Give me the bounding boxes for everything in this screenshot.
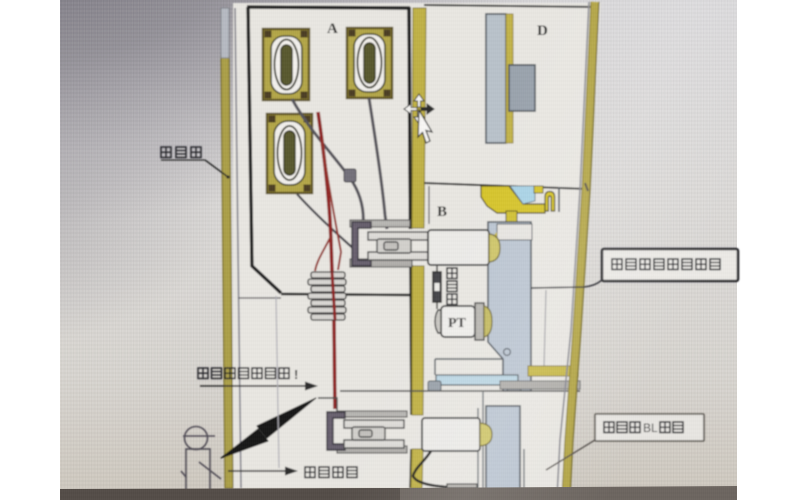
svg-text:!: !	[294, 367, 298, 382]
svg-text:B: B	[437, 204, 447, 220]
svg-text:D: D	[537, 23, 548, 39]
svg-text:BL: BL	[643, 421, 658, 435]
svg-text:A: A	[327, 21, 338, 37]
svg-text:PT: PT	[448, 316, 467, 331]
